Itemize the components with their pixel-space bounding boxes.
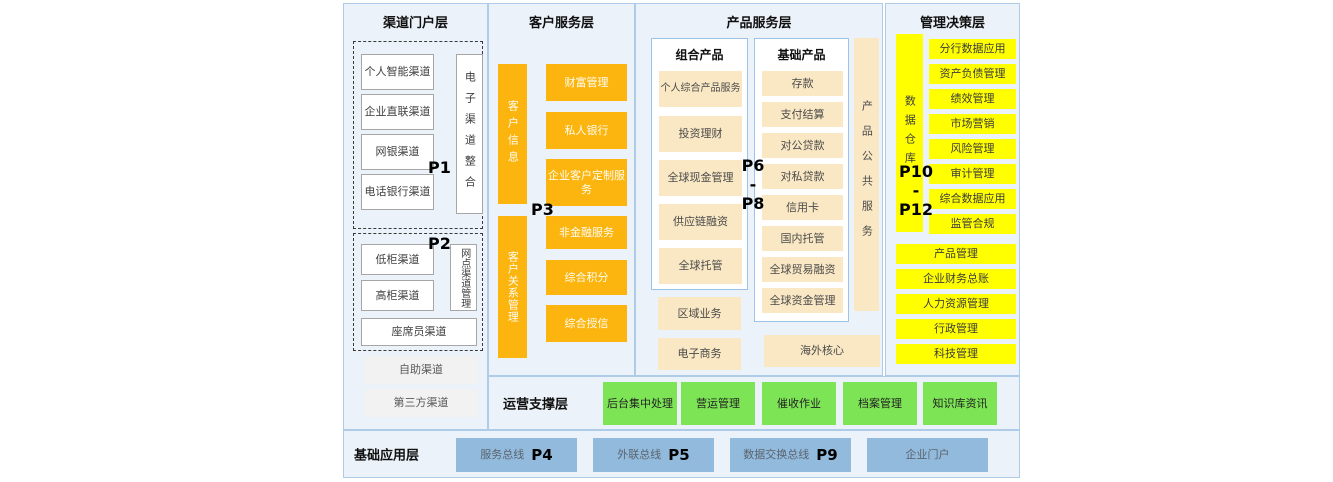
box-external-bus: 外联总线 P5 (593, 438, 714, 472)
p3-marker: P3 (531, 202, 554, 218)
p9-marker: P9 (816, 446, 837, 465)
p6-p8-marker: P6 - P8 (739, 156, 767, 213)
box-service-bus: 服务总线 P4 (456, 438, 577, 472)
box-product-management: 产品管理 (896, 244, 1016, 264)
management-decision-layer-panel: 管理决策层 数据仓库 分行数据应用 资产负债管理 绩效管理 市场营销 风险管理 … (885, 3, 1020, 376)
operations-support-layer-title: 运营支撑层 (503, 394, 568, 413)
external-bus-label: 外联总线 (617, 448, 661, 462)
p1-dashed-group: 个人智能渠道 企业直联渠道 网银渠道 电话银行渠道 电子渠道整合 P1 (353, 41, 483, 229)
box-third-party-channel: 第三方渠道 (365, 389, 477, 417)
enterprise-portal-label: 企业门户 (906, 448, 950, 462)
combo-products-subpanel: 组合产品 个人综合产品服务 投资理财 全球现金管理 供应链融资 全球托管 (651, 38, 748, 290)
data-exchange-bus-label: 数据交换总线 (743, 448, 809, 462)
box-enterprise-portal: 企业门户 (867, 438, 988, 472)
box-regional-business: 区域业务 (658, 297, 741, 330)
box-global-fund-management: 全球资金管理 (762, 288, 843, 313)
box-archive-management: 档案管理 (843, 382, 917, 425)
box-global-trade-finance: 全球贸易融资 (762, 257, 843, 282)
box-investment-wealth: 投资理财 (659, 116, 742, 152)
p2-marker: P2 (428, 236, 451, 252)
box-personal-loan: 对私贷款 (762, 164, 843, 189)
box-corporate-custom-service: 企业客户定制服务 (546, 159, 627, 206)
p5-marker: P5 (668, 446, 689, 465)
box-corporate-direct-channel: 企业直联渠道 (361, 94, 434, 130)
box-hr-management: 人力资源管理 (896, 294, 1016, 314)
p10-p12-marker: P10 - P12 (898, 162, 934, 219)
box-credit-card: 信用卡 (762, 195, 843, 220)
box-wealth-management: 财富管理 (546, 64, 627, 101)
box-knowledge-base: 知识库资讯 (923, 382, 997, 425)
box-branch-data-application: 分行数据应用 (929, 39, 1016, 59)
box-corporate-loan: 对公贷款 (762, 133, 843, 158)
p8-marker: P8 (739, 194, 767, 213)
box-technology-management: 科技管理 (896, 344, 1016, 364)
basic-products-subpanel: 基础产品 存款 支付结算 对公贷款 对私贷款 信用卡 国内托管 全球贸易融资 全… (754, 38, 849, 322)
bar-product-common-service: 产品公共服务 (854, 38, 879, 311)
bar-customer-info: 客户信息 (498, 64, 527, 204)
p4-marker: P4 (531, 446, 552, 465)
box-backoffice-processing: 后台集中处理 (603, 382, 677, 425)
p12-marker: P12 (898, 200, 934, 219)
base-application-layer-title: 基础应用层 (354, 445, 419, 464)
p10-p12-separator: - (898, 181, 934, 200)
box-asset-liability-management: 资产负债管理 (929, 64, 1016, 84)
box-domestic-custody: 国内托管 (762, 226, 843, 251)
box-collection-operations: 催收作业 (762, 382, 836, 425)
channel-portal-layer-panel: 渠道门户层 个人智能渠道 企业直联渠道 网银渠道 电话银行渠道 电子渠道整合 P… (343, 3, 488, 430)
box-self-service-channel: 自助渠道 (365, 356, 477, 384)
channel-portal-layer-title: 渠道门户层 (344, 12, 487, 31)
combo-products-header: 组合产品 (652, 46, 747, 63)
box-phone-bank-channel: 电话银行渠道 (361, 174, 434, 210)
box-operation-management: 营运管理 (681, 382, 755, 425)
box-corporate-finance-ledger: 企业财务总账 (896, 269, 1016, 289)
management-decision-layer-title: 管理决策层 (886, 12, 1019, 31)
box-agent-channel: 座席员渠道 (361, 318, 477, 346)
box-e-commerce: 电子商务 (658, 338, 741, 370)
operations-support-layer-panel: 运营支撑层 后台集中处理 营运管理 催收作业 档案管理 知识库资讯 (488, 376, 1020, 430)
box-non-financial-service: 非金融服务 (546, 216, 627, 249)
box-regulatory-compliance: 监管合规 (929, 214, 1016, 234)
box-low-counter-channel: 低柜渠道 (361, 244, 434, 275)
basic-products-header: 基础产品 (755, 46, 848, 63)
product-service-layer-title: 产品服务层 (636, 12, 882, 31)
box-integrated-data-application: 综合数据应用 (929, 189, 1016, 209)
box-supply-chain-finance: 供应链融资 (659, 204, 742, 240)
bar-customer-relationship-management: 客户关系管理 (498, 216, 527, 358)
p6-p8-separator: - (739, 175, 767, 194)
box-personal-smart-channel: 个人智能渠道 (361, 54, 434, 90)
customer-service-layer-title: 客户服务层 (489, 12, 634, 31)
box-administration-management: 行政管理 (896, 319, 1016, 339)
customer-service-layer-panel: 客户服务层 客户信息 客户关系管理 P3 财富管理 私人银行 企业客户定制服务 … (488, 3, 635, 376)
p2-dashed-group: 低柜渠道 高柜渠道 网点渠道管理 座席员渠道 P2 (353, 233, 483, 351)
bar-e-channel-integration: 电子渠道整合 (456, 54, 483, 214)
base-application-layer-panel: 基础应用层 服务总线 P4 外联总线 P5 数据交换总线 P9 企业门户 (343, 430, 1020, 478)
box-data-exchange-bus: 数据交换总线 P9 (730, 438, 851, 472)
p1-marker: P1 (428, 160, 451, 176)
box-deposit: 存款 (762, 71, 843, 96)
p6-marker: P6 (739, 156, 767, 175)
box-risk-management: 风险管理 (929, 139, 1016, 159)
box-overseas-core: 海外核心 (764, 335, 880, 367)
box-audit-management: 审计管理 (929, 164, 1016, 184)
box-payment-settlement: 支付结算 (762, 102, 843, 127)
bar-branch-channel-management: 网点渠道管理 (450, 244, 477, 311)
architecture-diagram: 渠道门户层 个人智能渠道 企业直联渠道 网银渠道 电话银行渠道 电子渠道整合 P… (0, 0, 1333, 482)
box-personal-integrated-product-service: 个人综合产品服务 (659, 71, 742, 107)
box-performance-management: 绩效管理 (929, 89, 1016, 109)
box-high-counter-channel: 高柜渠道 (361, 280, 434, 311)
box-marketing: 市场营销 (929, 114, 1016, 134)
box-integrated-points: 综合积分 (546, 260, 627, 295)
product-service-layer-panel: 产品服务层 组合产品 个人综合产品服务 投资理财 全球现金管理 供应链融资 全球… (635, 3, 883, 376)
service-bus-label: 服务总线 (480, 448, 524, 462)
box-global-custody: 全球托管 (659, 248, 742, 284)
box-global-cash-management: 全球现金管理 (659, 160, 742, 196)
p10-marker: P10 (898, 162, 934, 181)
box-integrated-credit: 综合授信 (546, 305, 627, 342)
box-private-banking: 私人银行 (546, 112, 627, 149)
box-ebank-channel: 网银渠道 (361, 134, 434, 170)
